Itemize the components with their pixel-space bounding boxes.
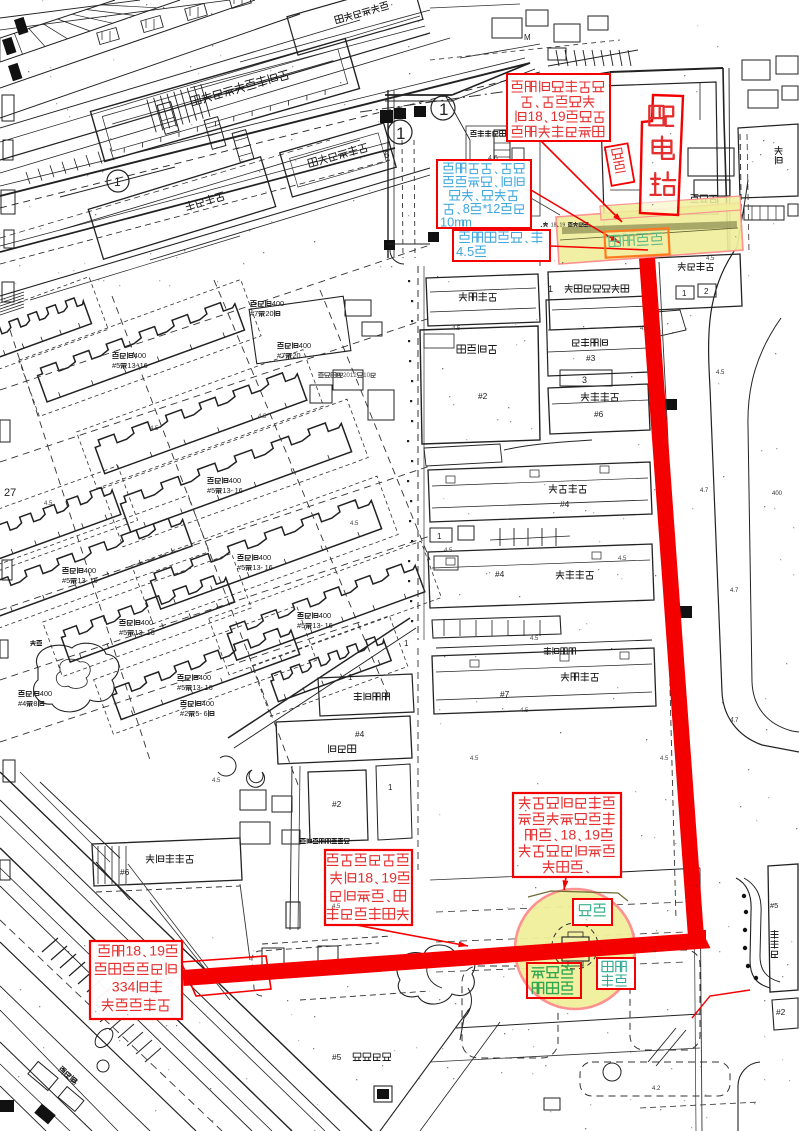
svg-text:1: 1 (584, 828, 592, 844)
svg-text:1: 1 (396, 124, 405, 143)
svg-text:4.5: 4.5 (444, 548, 453, 554)
svg-text:4.5: 4.5 (470, 756, 479, 762)
svg-text:7: 7 (254, 309, 258, 318)
svg-text:0: 0 (149, 618, 153, 627)
svg-text:4.5: 4.5 (452, 326, 461, 332)
svg-text:1: 1 (388, 783, 393, 792)
svg-text:2: 2 (493, 201, 500, 216)
svg-text:6: 6 (204, 709, 208, 718)
svg-text:4.7: 4.7 (730, 718, 739, 724)
svg-text:6: 6 (269, 563, 273, 572)
svg-text:9: 9 (157, 944, 165, 960)
svg-text:0: 0 (210, 699, 214, 708)
svg-text:1: 1 (149, 944, 157, 960)
svg-text:4.5: 4.5 (716, 370, 725, 376)
svg-text:6: 6 (384, 150, 390, 161)
svg-text:1: 1 (404, 639, 409, 648)
svg-text:4.5: 4.5 (520, 708, 529, 714)
svg-text:6: 6 (144, 361, 148, 370)
svg-text:0: 0 (142, 351, 146, 360)
svg-text:5: 5 (211, 486, 215, 495)
svg-text:4.5: 4.5 (332, 904, 341, 910)
svg-text:4.7: 4.7 (730, 588, 739, 594)
svg-text:2: 2 (483, 391, 488, 401)
svg-text:1: 1 (348, 673, 353, 682)
svg-text:8: 8 (33, 699, 37, 708)
svg-text:0: 0 (307, 341, 311, 350)
svg-text:4.5: 4.5 (44, 501, 53, 507)
svg-text:2: 2 (337, 799, 342, 809)
svg-text:4: 4 (360, 729, 365, 739)
svg-text:4: 4 (128, 980, 136, 996)
svg-text:9: 9 (389, 871, 397, 887)
svg-text:4.5: 4.5 (350, 521, 359, 527)
svg-text:2: 2 (704, 287, 709, 296)
svg-text:5: 5 (467, 244, 474, 259)
svg-text:0: 0 (92, 566, 96, 575)
svg-text:m: m (461, 215, 472, 230)
svg-text:6: 6 (209, 683, 213, 692)
svg-text:1: 1 (682, 289, 687, 298)
svg-text:5: 5 (241, 563, 245, 572)
svg-text:1: 1 (437, 532, 442, 541)
svg-text:6: 6 (125, 867, 130, 877)
svg-text:4.5: 4.5 (640, 326, 649, 332)
svg-text:0: 0 (270, 309, 274, 318)
svg-text:4.5: 4.5 (706, 256, 715, 262)
svg-text:1: 1 (439, 100, 448, 119)
svg-text:2: 2 (184, 709, 188, 718)
svg-text:1: 1 (486, 201, 493, 216)
svg-text:5: 5 (66, 576, 70, 585)
svg-text:4.2: 4.2 (652, 1086, 661, 1092)
svg-text:2: 2 (781, 1007, 786, 1017)
svg-text:0: 0 (327, 611, 331, 620)
svg-text:8: 8 (554, 222, 557, 228)
svg-text:4: 4 (456, 244, 463, 259)
svg-text:4.5: 4.5 (150, 426, 159, 432)
svg-text:M: M (524, 33, 531, 42)
svg-text:6: 6 (239, 486, 243, 495)
svg-text:0: 0 (297, 351, 301, 360)
svg-text:6: 6 (599, 409, 604, 419)
svg-text:6: 6 (329, 621, 333, 630)
svg-text:3: 3 (120, 980, 128, 996)
svg-text:8: 8 (365, 871, 373, 887)
svg-text:4: 4 (500, 569, 505, 579)
svg-text:3: 3 (591, 353, 596, 363)
svg-text:1: 1 (358, 871, 366, 887)
svg-text:0: 0 (207, 673, 211, 682)
svg-text:4.5: 4.5 (618, 556, 627, 562)
svg-text:0: 0 (447, 215, 454, 230)
svg-text:9: 9 (562, 222, 565, 228)
svg-text:8: 8 (568, 828, 576, 844)
svg-text:400: 400 (772, 491, 783, 497)
svg-text:2: 2 (353, 372, 357, 379)
svg-text:8: 8 (535, 109, 543, 124)
svg-text:1: 1 (528, 109, 536, 124)
svg-text:1: 1 (440, 215, 447, 230)
svg-text:1: 1 (551, 109, 559, 124)
svg-text:27: 27 (4, 487, 16, 499)
svg-text:4.5: 4.5 (660, 756, 669, 762)
svg-text:8: 8 (133, 944, 141, 960)
svg-text:3: 3 (582, 375, 587, 385)
svg-text:0: 0 (237, 476, 241, 485)
svg-text:5: 5 (337, 1052, 342, 1062)
svg-text:4.5: 4.5 (212, 778, 221, 784)
svg-text:0: 0 (367, 372, 371, 379)
svg-text:4: 4 (22, 699, 26, 708)
svg-text:3: 3 (112, 980, 120, 996)
svg-text:7: 7 (281, 351, 285, 360)
svg-text:5: 5 (774, 901, 778, 910)
svg-text:9: 9 (558, 109, 566, 124)
svg-text:4.5: 4.5 (258, 414, 267, 420)
svg-text:0: 0 (280, 299, 284, 308)
svg-text:0: 0 (267, 553, 271, 562)
svg-text:0: 0 (48, 689, 52, 698)
svg-text:5: 5 (181, 683, 185, 692)
svg-text:1: 1 (126, 944, 134, 960)
svg-text:1: 1 (561, 828, 569, 844)
svg-text:5: 5 (123, 628, 127, 637)
svg-text:4.7: 4.7 (700, 488, 709, 494)
svg-text:4: 4 (565, 499, 570, 509)
svg-text:5: 5 (116, 361, 120, 370)
svg-text:4.5: 4.5 (530, 636, 539, 642)
svg-text:1: 1 (548, 284, 553, 294)
svg-text:9: 9 (592, 828, 600, 844)
svg-text:1: 1 (381, 871, 389, 887)
